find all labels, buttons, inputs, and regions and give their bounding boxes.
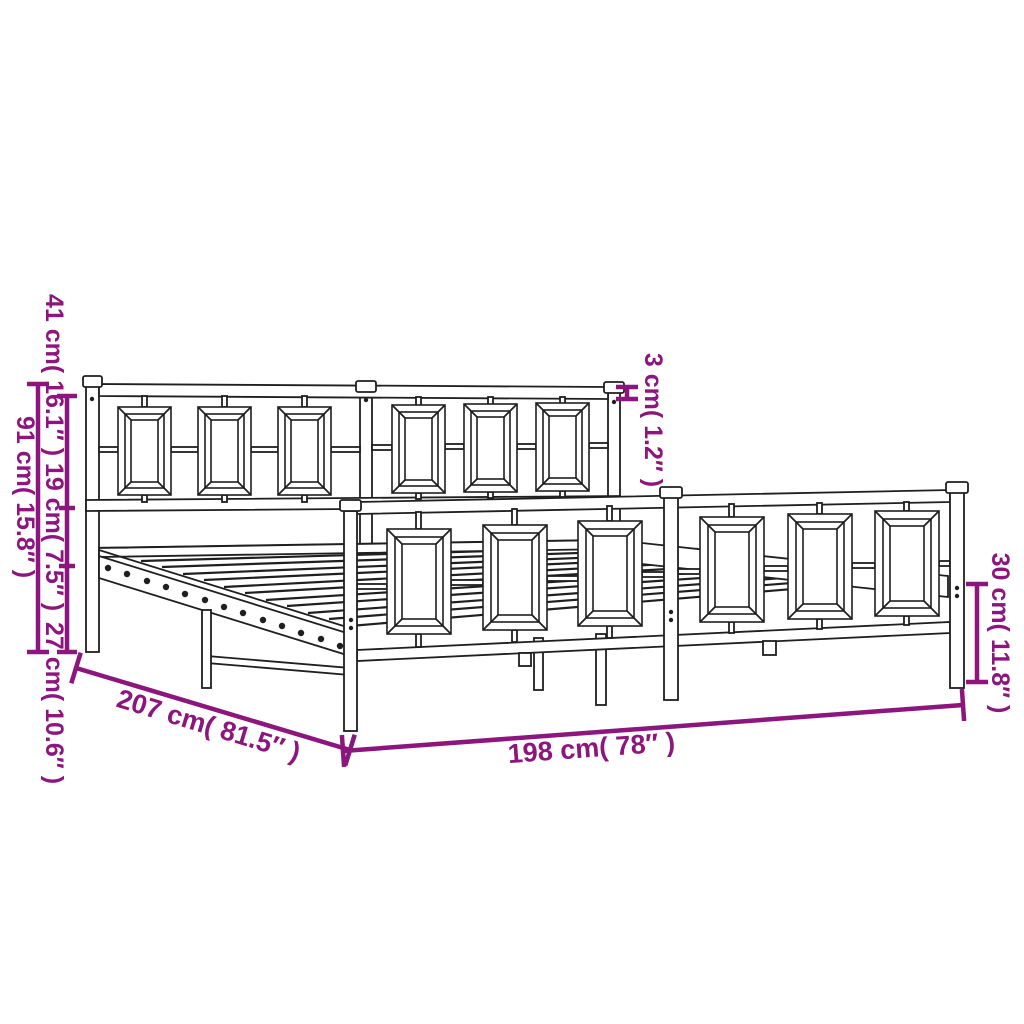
bolt-dot (955, 594, 959, 598)
headboard-panel (392, 405, 445, 493)
foot-tab (763, 641, 776, 655)
panel-stub (445, 444, 464, 449)
panel-stub (331, 447, 360, 452)
dimension-label-rail-thickness: 3 cm( 1.2″ ) (639, 353, 667, 487)
panel-stub (764, 566, 788, 571)
dimension-label-leg-section: 27 cm( 10.6″ ) (40, 622, 68, 784)
footboard-panel (483, 525, 547, 630)
rail-hole (298, 630, 304, 636)
panel-stub (547, 576, 578, 581)
bolt-dot (349, 626, 353, 630)
dimension-label-overall-height: 91 cm( 15.8″ ) (11, 416, 39, 578)
footboard-panel (700, 517, 764, 622)
panel-stub (222, 495, 227, 502)
panel-stub (416, 493, 421, 499)
support-leg (202, 610, 211, 688)
bolt-dot (364, 398, 368, 402)
panel-stub (607, 506, 612, 521)
bed-frame-drawing (83, 376, 968, 731)
rail-hole (221, 604, 227, 610)
dim-rail-thickness: 3 cm( 1.2″ ) (616, 353, 667, 487)
headboard-panel (118, 407, 171, 495)
dim-footboard-height: 30 cm( 11.8″ ) (966, 553, 1014, 714)
dimension-cap (962, 689, 964, 721)
footboard-panel (387, 529, 451, 634)
rail-hole (279, 623, 285, 629)
rail-hole (144, 578, 150, 584)
dimension-label-footboard-height: 30 cm( 11.8″ ) (986, 553, 1014, 714)
headboard-left-post (86, 386, 99, 652)
panel-stub (852, 563, 875, 568)
panel-stub (222, 396, 227, 407)
post-cap (946, 482, 968, 493)
rail-hole (124, 571, 130, 577)
headboard-panel (278, 407, 331, 495)
dim-height-sections: 41 cm( 16.1″ ) 19 cm( 7.5″ ) 27 cm( 10.6… (40, 294, 77, 784)
bolt-dot (90, 397, 94, 401)
side-stretcher (207, 656, 350, 675)
panel-stub (589, 443, 608, 448)
panel-stub (560, 491, 565, 497)
headboard-panel (198, 407, 251, 495)
bolt-dot (955, 586, 959, 590)
panel-stub (372, 445, 392, 450)
footboard-top-rail (357, 490, 950, 514)
footboard-center-post (664, 497, 678, 700)
rail-hole (202, 597, 208, 603)
footboard (340, 482, 968, 731)
panel-stub (142, 495, 147, 502)
foot-tab (519, 653, 531, 666)
panel-stub (642, 572, 664, 577)
panel-stub (607, 626, 612, 638)
footboard-panel (788, 514, 852, 619)
headboard-panel (536, 403, 589, 491)
panel-stub (416, 634, 421, 647)
bolt-dot (612, 400, 616, 404)
dimension-label-frame-width: 198 cm( 78″ ) (507, 727, 676, 769)
panel-stub (99, 447, 118, 452)
panel-stub (302, 396, 307, 407)
panel-stub (302, 495, 307, 502)
rail-hole (105, 565, 111, 571)
panel-stub (817, 619, 822, 629)
bolt-dot (669, 610, 673, 614)
rail-hole (163, 584, 169, 590)
panel-stub (517, 444, 536, 449)
rail-hole (182, 591, 188, 597)
post-cap (356, 381, 376, 392)
rail-hole (337, 643, 343, 649)
post-cap (660, 487, 682, 498)
headboard-top-rail (99, 384, 608, 399)
bed-frame-diagram: 91 cm( 15.8″ ) 41 cm( 16.1″ ) 19 cm( 7.5… (0, 0, 1024, 1024)
panel-stub (357, 584, 387, 589)
dimension-label-headboard-section: 41 cm( 16.1″ ) (40, 294, 68, 456)
panel-stub (451, 580, 483, 585)
panel-stub (512, 509, 517, 525)
footboard-panel (578, 521, 642, 626)
rail-hole (318, 636, 324, 642)
post-cap (83, 376, 102, 387)
rail-hole (260, 617, 266, 623)
dim-frame-width: 198 cm( 78″ ) (342, 689, 964, 769)
bolt-dot (349, 618, 353, 622)
panel-stub (251, 447, 278, 452)
bolt-dot (669, 618, 673, 622)
panel-stub (729, 622, 734, 633)
dimension-label-middle-section: 19 cm( 7.5″ ) (40, 463, 68, 611)
panel-stub (488, 492, 493, 498)
footboard-panel (875, 511, 939, 616)
panel-stub (904, 502, 909, 511)
panel-stub (817, 503, 822, 514)
post-cap (340, 500, 361, 511)
panel-stub (939, 561, 950, 566)
panel-stub (416, 512, 421, 529)
panel-stub (142, 396, 147, 407)
product-dimension-diagram: 91 cm( 15.8″ ) 41 cm( 16.1″ ) 19 cm( 7.5… (0, 0, 1024, 1024)
headboard-center-post (360, 392, 372, 553)
panel-stub (678, 569, 700, 574)
panel-stub (729, 504, 734, 517)
dimension-cap (342, 735, 344, 767)
rail-hole (240, 610, 246, 616)
panel-stub (512, 630, 517, 642)
panel-stub (171, 447, 198, 452)
panel-stub (904, 616, 909, 625)
headboard-panel (464, 404, 517, 492)
